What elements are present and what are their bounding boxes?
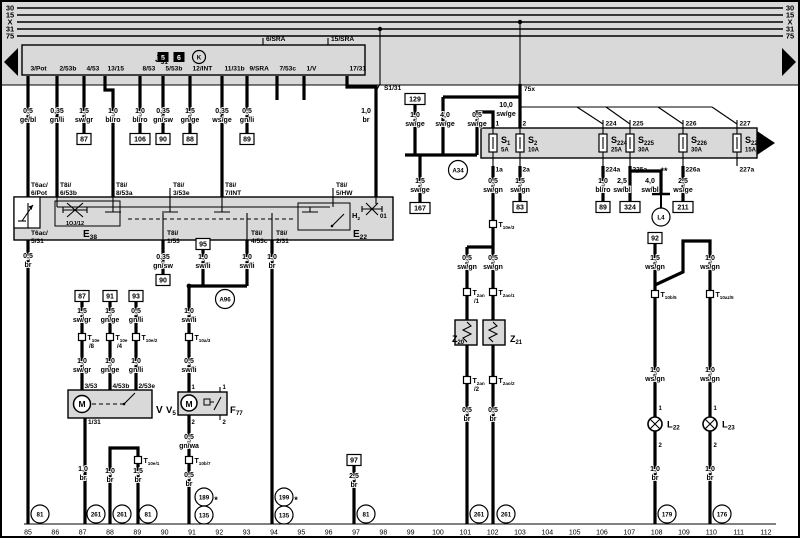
wire-color-label: sw/bl [641, 187, 659, 194]
wire-color-label: br [464, 416, 471, 423]
wire-color-label: br [652, 475, 659, 482]
wire-color-label: sw/gn [483, 187, 503, 194]
diagram-label: 4/53c [251, 238, 268, 245]
track-number: 94 [270, 530, 278, 537]
diagram-label: 1OJ/12 [66, 221, 84, 227]
wire-size-label: 0,5 [184, 434, 194, 441]
wire-reference-label: 90 [159, 137, 167, 144]
connector-pin-label: /8 [89, 344, 95, 350]
connector-icon [133, 334, 140, 341]
wire-size-label: 0,5 [462, 407, 472, 414]
diagram-label: 5/31 [31, 238, 44, 245]
relay-badge-label: 6 [177, 55, 181, 62]
wire-color-label: br [707, 475, 714, 482]
diagram-label: 6/SRA [266, 36, 286, 43]
wire-size-label: 0,5 [23, 108, 33, 115]
track-number: 101 [459, 530, 471, 537]
diagram-label: T8i/ [167, 230, 179, 237]
wire-size-label: 1,0 [242, 254, 252, 261]
wire-color-label: sw/gr [73, 317, 92, 324]
connector-icon [652, 291, 659, 298]
wire-reference-label: 93 [132, 294, 140, 301]
connection-circle-label: 179 [662, 511, 673, 518]
track-number: 85 [24, 530, 32, 537]
diagram-label: 2/53e [139, 383, 156, 390]
wire-color-label: gn/li [240, 117, 254, 124]
wire-color-label: ws/ge [211, 117, 232, 124]
wire-size-label: 1,5 [515, 178, 525, 185]
track-number: 91 [188, 530, 196, 537]
connection-circle-label: 81 [37, 511, 44, 518]
connector-icon [464, 377, 471, 384]
connector-icon [464, 289, 471, 296]
wire-size-label: 1,0 [598, 178, 608, 185]
wire-size-label: 1,5 [415, 178, 425, 185]
track-number: 103 [514, 530, 526, 537]
wire-reference-label: 92 [651, 236, 659, 243]
connection-circle-label: 135 [279, 512, 290, 519]
connector-icon [490, 221, 497, 228]
wire-color-label: gn/ge [181, 117, 200, 124]
wire-size-label: 1,0 [361, 108, 371, 115]
wire-size-label: 1,0 [77, 358, 87, 365]
track-number: 112 [760, 530, 771, 537]
wire-size-label: 4,0 [645, 178, 655, 185]
wire-size-label: 1,5 [105, 308, 115, 315]
fuse-terminal-label: 225a [633, 167, 648, 174]
connector-icon [186, 457, 193, 464]
diagram-label: 9/SRA [250, 66, 270, 73]
wire-size-label: 4,0 [440, 112, 450, 119]
wire-color-label: sw/gr [75, 117, 94, 124]
wire-color-label: gn/ge [101, 317, 120, 324]
fuse-rating-label: 30A [691, 148, 703, 154]
diagram-label: 17/31 [350, 66, 367, 73]
track-number: 108 [651, 530, 663, 537]
diagram-label: 4/53 [87, 66, 100, 73]
wire-size-label: 2,5 [678, 178, 688, 185]
wire-color-label: sw/gn [510, 187, 530, 194]
wire-color-label: gn/sw [153, 117, 173, 124]
diagram-label: ** [660, 166, 668, 176]
track-number: 92 [215, 530, 223, 537]
wire-color-label: sw/ge [405, 121, 425, 128]
diagram-label: T8i/ [116, 182, 128, 189]
fuse-rating-label: 30A [638, 148, 650, 154]
connector-icon [79, 334, 86, 341]
wire-size-label: 0,35 [156, 108, 170, 115]
fuse-rating-label: 5A [501, 148, 509, 154]
wire-color-label: br [351, 482, 358, 489]
bus-label-right: 75 [786, 32, 794, 41]
wire-size-label: 10,0 [499, 102, 513, 109]
fuse-terminal-label: 1a [496, 167, 504, 174]
diagram-label: T6ac/ [31, 230, 48, 237]
diagram-label: 2/53b [60, 66, 77, 73]
diagram-label: 3/Pot [31, 66, 48, 73]
wire-size-label: 0,5 [242, 108, 252, 115]
wire-size-label: 1,0 [705, 466, 715, 473]
diagram-label: 12/INT [193, 66, 213, 73]
track-number: 98 [379, 530, 387, 537]
diagram-label: * [214, 495, 218, 505]
fuse-terminal-label: 225 [633, 121, 644, 128]
track-number: 99 [407, 530, 415, 537]
diagram-label: 3/53e [173, 190, 190, 197]
wire-size-label: 0,5 [472, 112, 482, 119]
wire-color-label: bl/ro [595, 187, 610, 194]
diagram-label: S1/31 [384, 85, 402, 92]
fuse-terminal-label: 2a [523, 167, 531, 174]
wire-color-label: gn/ge [101, 367, 120, 374]
wire-color-label: gn/wa [179, 443, 199, 450]
wire-color-label: sw/gn [457, 264, 477, 271]
wire-color-label: gn/li [129, 317, 143, 324]
wire-size-label: 1,0 [410, 112, 420, 119]
wire-color-label: br [80, 475, 87, 482]
wire-size-label: 2,5 [617, 178, 627, 185]
diagram-label: 6/53b [60, 190, 77, 197]
fuse-terminal-label: 1 [496, 121, 500, 128]
wire-color-label: bl/ro [105, 117, 120, 124]
wire-color-label: br [490, 416, 497, 423]
wire-size-label: 1,0 [108, 108, 118, 115]
diagram-label: 6/Pot [31, 190, 48, 197]
track-number: 100 [432, 530, 444, 537]
wire-size-label: 2,5 [349, 473, 359, 480]
diagram-label: 11/31b [225, 66, 245, 73]
wire-size-label: 1,0 [650, 367, 660, 374]
diagram-label: T8i/ [225, 182, 237, 189]
wire-color-label: sw/bl [613, 187, 631, 194]
connection-circle-label: 199 [279, 494, 290, 501]
track-number: 90 [161, 530, 169, 537]
wire-size-label: 0,35 [215, 108, 229, 115]
wire-size-label: 0,5 [184, 358, 194, 365]
diagram-label: 75x [524, 86, 535, 93]
connection-circle-label: 261 [117, 511, 128, 518]
wire-color-label: sw/li [195, 263, 210, 270]
track-number: 109 [678, 530, 690, 537]
wiring-diagram-page: 3015X31753015X31758586878889909192939495… [0, 0, 800, 538]
fuse-terminal-label: 226 [686, 121, 697, 128]
wire-reference-label: 87 [78, 294, 86, 301]
wire-size-label: 0,5 [488, 255, 498, 262]
wire-color-label: sw/li [181, 317, 196, 324]
wire-color-label: ws/gn [699, 376, 720, 383]
track-number: 97 [352, 530, 360, 537]
connection-circle-label: L4 [657, 214, 665, 221]
fuse-terminal-label: 227 [740, 121, 751, 128]
connection-circle-label: 261 [91, 511, 102, 518]
wiring-diagram: 3015X31753015X31758586878889909192939495… [0, 0, 800, 538]
wire-size-label: 0,35 [156, 254, 170, 261]
track-number: 107 [623, 530, 635, 537]
wire-color-label: sw/gn [483, 264, 503, 271]
connection-circle-label: 261 [474, 511, 485, 518]
wire-reference-label: 89 [243, 137, 251, 144]
wire-size-label: 1,5 [133, 468, 143, 475]
fuse-rating-label: 25A [611, 148, 623, 154]
wire-size-label: 1,0 [198, 254, 208, 261]
diagram-label: 13/15 [108, 66, 125, 73]
connector-icon [107, 334, 114, 341]
wire-color-label: sw/li [181, 367, 196, 374]
diagram-label: 7/INT [225, 190, 241, 197]
diagram-label: 3/53 [85, 383, 98, 390]
diagram-label: 1/53 [167, 238, 180, 245]
heater-z21 [483, 320, 505, 345]
fuse-terminal-label: 224 [606, 121, 617, 128]
connection-circle-label: 135 [199, 512, 210, 519]
fuse-terminal-label: 224a [606, 167, 621, 174]
wire-size-label: 1,0 [184, 308, 194, 315]
wire-reference-label: 95 [199, 242, 207, 249]
wire-reference-label: 211 [677, 205, 688, 212]
connector-pin-label: /4 [117, 344, 123, 350]
connector-icon [186, 334, 193, 341]
diagram-label: T6ac/ [31, 182, 48, 189]
wire-color-label: ge/bl [20, 117, 36, 124]
wire-size-label: 0,5 [131, 308, 141, 315]
diagram-label: T8i/ [173, 182, 185, 189]
wire-size-label: 0,5 [184, 472, 194, 479]
wire-color-label: sw/ge [496, 111, 516, 118]
track-number: 104 [541, 530, 553, 537]
wire-size-label: 0,35 [50, 108, 64, 115]
wire-size-label: 1,0 [650, 466, 660, 473]
diagram-label: T8i/ [60, 182, 72, 189]
wire-reference-label: 87 [80, 137, 88, 144]
fuse-terminal-label: 227a [740, 167, 755, 174]
wire-color-label: sw/li [239, 263, 254, 270]
wire-size-label: 1,0 [105, 468, 115, 475]
connection-circle-label: 81 [145, 511, 152, 518]
diagram-label: T8i/ [336, 182, 348, 189]
wire-color-label: ws/ge [672, 187, 693, 194]
connection-circle-label: 81 [363, 511, 370, 518]
wire-size-label: 0,5 [462, 255, 472, 262]
wire-color-label: sw/gr [73, 367, 92, 374]
fuse-terminal-label: 226a [686, 167, 701, 174]
diagram-label: M [185, 399, 192, 409]
fuse-rating-label: 10A [528, 148, 540, 154]
wire-color-label: br [363, 117, 370, 124]
diagram-label: 4/53b [113, 383, 130, 390]
wire-color-label: br [269, 263, 276, 270]
connection-circle-label: A96 [219, 296, 231, 303]
diagram-label: 2/31 [276, 238, 289, 245]
connection-circle-label: A34 [452, 167, 464, 174]
wire-size-label: 0,5 [23, 253, 33, 260]
wire-size-label: 1,0 [78, 466, 88, 473]
wire-size-label: 1,0 [135, 108, 145, 115]
track-number: 96 [325, 530, 333, 537]
connector-pin-label: /1 [474, 299, 480, 305]
wire-size-label: 0,5 [488, 407, 498, 414]
diagram-label: * [294, 495, 298, 505]
potentiometer-box [14, 197, 40, 228]
wire-size-label: 1,0 [705, 367, 715, 374]
diagram-label: 01 [380, 214, 387, 220]
wire-color-label: br [135, 477, 142, 484]
track-number: 102 [487, 530, 499, 537]
wire-size-label: 1,0 [267, 254, 277, 261]
wire-color-label: br [25, 262, 32, 269]
diagram-label: 1/31 [88, 419, 101, 426]
diagram-label: 7/53c [280, 66, 297, 73]
track-number: 110 [706, 530, 717, 537]
wire-reference-label: 106 [134, 137, 146, 144]
track-number: 88 [106, 530, 114, 537]
switch-e38-e22 [14, 197, 393, 240]
wire-color-label: bl/ro [132, 117, 147, 124]
connection-circle-label: 189 [199, 494, 210, 501]
wire-color-label: sw/ge [467, 121, 487, 128]
diagram-label: 8/53a [116, 190, 133, 197]
wire-color-label: ws/gn [644, 376, 665, 383]
track-number: 93 [243, 530, 251, 537]
track-number: 106 [596, 530, 608, 537]
wire-reference-label: 91 [106, 294, 114, 301]
track-number: 87 [79, 530, 87, 537]
connector-icon [707, 291, 714, 298]
wire-reference-label: 324 [624, 205, 636, 212]
diagram-label: M [78, 399, 85, 409]
wire-color-label: gn/li [50, 117, 64, 124]
diagram-label: 8/53 [143, 66, 156, 73]
diagram-label: T8i/ [276, 230, 288, 237]
track-number: 89 [133, 530, 141, 537]
track-number: 86 [51, 530, 59, 537]
wire-reference-label: 97 [350, 458, 358, 465]
wire-color-label: sw/ge [435, 121, 455, 128]
track-number: 95 [297, 530, 305, 537]
wire-size-label: 1,5 [77, 308, 87, 315]
wire-size-label: 1,5 [79, 108, 89, 115]
track-number: 111 [733, 530, 744, 537]
fuse-rating-label: 15A [745, 148, 757, 154]
wire-reference-label: 89 [599, 205, 607, 212]
diagram-label: 5/HW [336, 190, 353, 197]
diagram-label: 1/V [307, 66, 317, 73]
diagram-label: T8i/ [251, 230, 263, 237]
connector-pin-label: /2 [474, 387, 480, 393]
connector-icon [490, 289, 497, 296]
wire-reference-label: 129 [409, 97, 421, 104]
wire-color-label: br [107, 477, 114, 484]
wire-reference-label: 90 [159, 278, 167, 285]
fuse-terminal-label: 2 [523, 121, 527, 128]
diagram-label: 5/53b [166, 66, 183, 73]
track-number: 105 [569, 530, 581, 537]
wire-size-label: 1,5 [185, 108, 195, 115]
wire-size-label: 1,0 [705, 255, 715, 262]
wire-size-label: 0,5 [488, 178, 498, 185]
connection-circle-label: 176 [717, 511, 728, 518]
connector-icon [490, 377, 497, 384]
wire-reference-label: 88 [186, 137, 194, 144]
bus-label-left: 75 [6, 32, 14, 41]
component-label: V [156, 405, 163, 416]
wire-color-label: ws/gn [644, 264, 665, 271]
wire-size-label: 1,0 [131, 358, 141, 365]
diagram-label: 15/SRA [331, 36, 354, 43]
wire-size-label: 1,0 [105, 358, 115, 365]
wire-size-label: 1,5 [650, 255, 660, 262]
wire-color-label: gn/li [129, 367, 143, 374]
connection-circle-label: 261 [501, 511, 512, 518]
connector-icon [135, 457, 142, 464]
relay-symbol-label: K [197, 55, 202, 62]
wire-color-label: ws/gn [699, 264, 720, 271]
wire-color-label: br [186, 481, 193, 488]
wire-reference-label: 167 [414, 206, 426, 213]
wire-color-label: gn/sw [153, 263, 173, 270]
wire-color-label: sw/ge [410, 187, 430, 194]
wire-reference-label: 83 [516, 205, 524, 212]
